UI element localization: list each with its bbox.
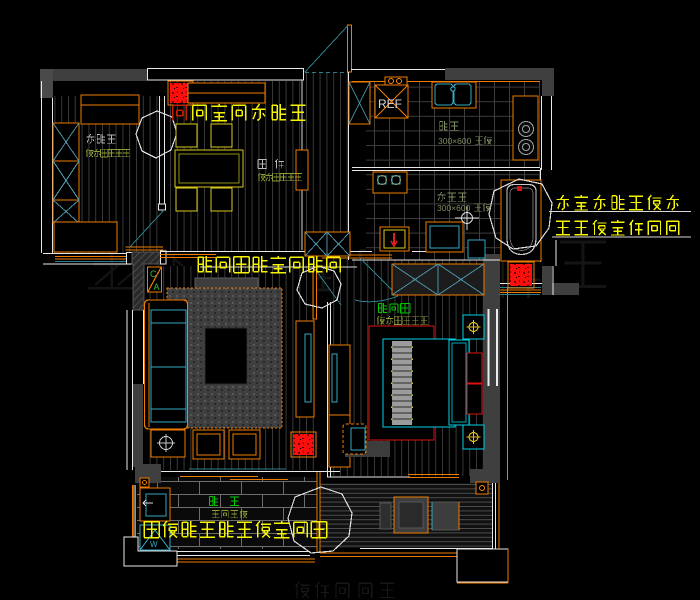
svg-text:REF: REF [378,97,402,111]
svg-text:300×600: 300×600 [438,136,472,146]
svg-text:W: W [150,540,158,549]
svg-text:C: C [150,269,157,279]
svg-text:A: A [154,282,160,292]
svg-text:300×600: 300×600 [437,203,471,213]
